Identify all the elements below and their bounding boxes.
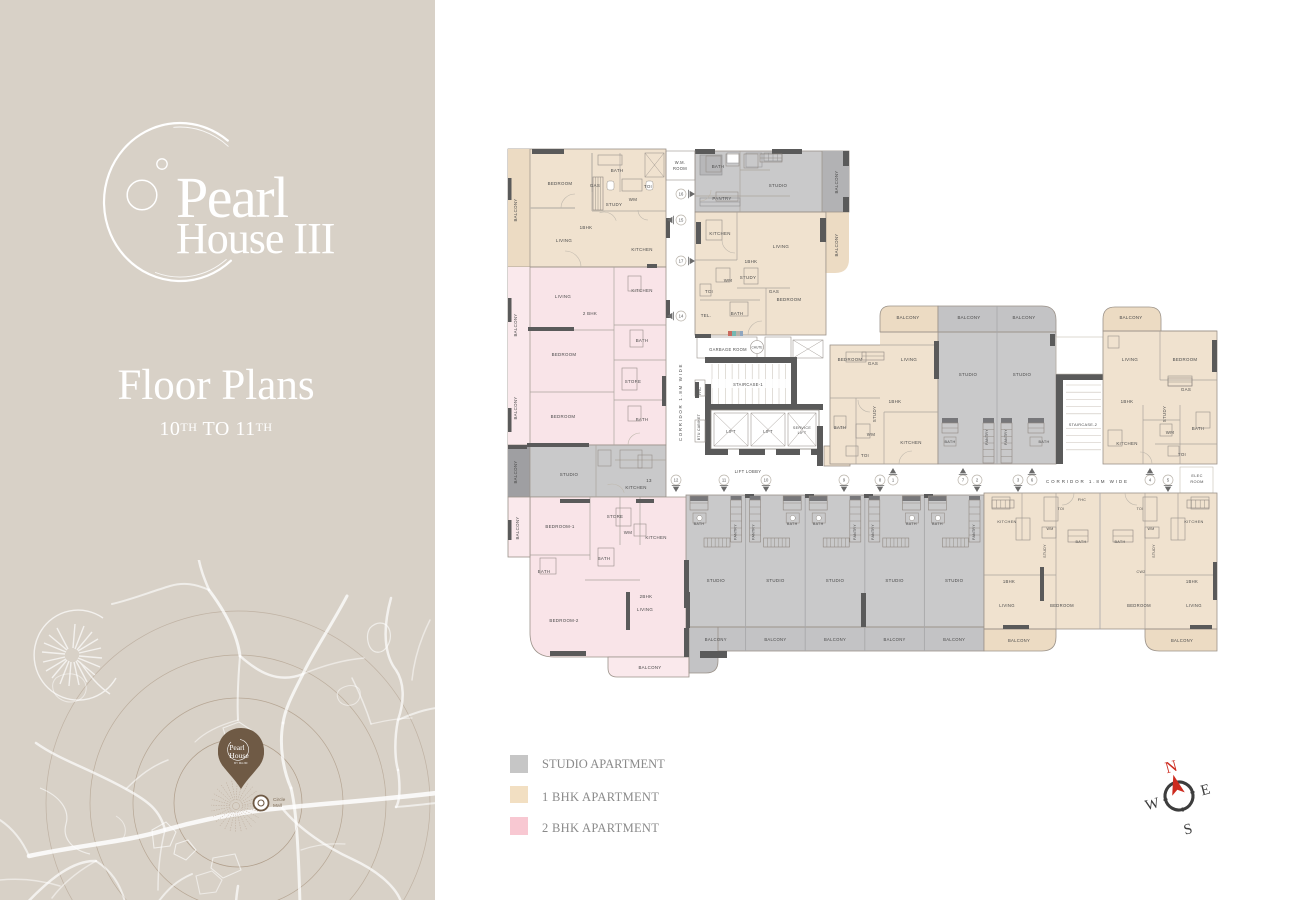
svg-text:1BHK: 1BHK [1186, 579, 1198, 584]
svg-text:LIVING: LIVING [555, 294, 571, 299]
svg-text:FHC: FHC [1078, 498, 1086, 502]
svg-text:STUDIO: STUDIO [945, 578, 964, 583]
svg-text:WM: WM [1047, 527, 1054, 531]
svg-text:BATH: BATH [598, 556, 611, 561]
svg-text:N: N [1163, 756, 1180, 777]
svg-text:STUDIO: STUDIO [959, 372, 978, 377]
svg-text:BEDROOM: BEDROOM [548, 181, 573, 186]
svg-text:LIVING: LIVING [901, 357, 917, 362]
svg-text:BATH: BATH [1038, 440, 1049, 444]
svg-text:KITCHEN: KITCHEN [631, 247, 652, 252]
svg-text:BATH: BATH [944, 440, 955, 444]
svg-text:SERVICE: SERVICE [793, 426, 811, 430]
svg-text:13: 13 [646, 478, 652, 483]
svg-text:CHUTE: CHUTE [752, 346, 763, 350]
svg-text:STUDY: STUDY [1152, 544, 1156, 558]
svg-text:LIVING: LIVING [1122, 357, 1138, 362]
svg-text:BEDROOM: BEDROOM [552, 352, 577, 357]
svg-text:BATH: BATH [538, 569, 551, 574]
svg-text:LIFT: LIFT [763, 429, 773, 434]
svg-text:BALCONY: BALCONY [1008, 638, 1030, 643]
svg-text:BEDROOM: BEDROOM [551, 414, 576, 419]
svg-text:BALCONY: BALCONY [638, 665, 661, 670]
svg-text:KITCHEN: KITCHEN [625, 485, 646, 490]
svg-text:TEL.: TEL. [701, 313, 711, 318]
svg-text:STORE: STORE [625, 379, 642, 384]
svg-text:15: 15 [679, 218, 684, 223]
svg-text:BALCONY: BALCONY [515, 516, 520, 539]
svg-text:STAIRCASE-2: STAIRCASE-2 [1069, 422, 1098, 427]
svg-text:BALCONY: BALCONY [884, 637, 906, 642]
svg-text:17: 17 [679, 259, 684, 264]
svg-text:10: 10 [764, 478, 769, 483]
svg-text:16: 16 [679, 192, 684, 197]
svg-text:TOI: TOI [1137, 507, 1144, 511]
svg-text:BEDROOM: BEDROOM [838, 357, 863, 362]
svg-text:BALCONY: BALCONY [513, 198, 518, 221]
svg-text:PANTRY: PANTRY [734, 524, 738, 540]
svg-text:TOI: TOI [705, 289, 713, 294]
svg-text:KITCHEN: KITCHEN [631, 288, 652, 293]
svg-text:STAIRCASE-1: STAIRCASE-1 [733, 382, 763, 387]
svg-text:1BHK: 1BHK [889, 399, 902, 404]
svg-text:BALCONY: BALCONY [824, 637, 846, 642]
svg-text:STUDIO: STUDIO [1013, 372, 1032, 377]
svg-text:BEDROOM: BEDROOM [777, 297, 802, 302]
svg-text:STORE: STORE [607, 514, 624, 519]
svg-text:STUDIO: STUDIO [826, 578, 845, 583]
svg-text:BATH: BATH [694, 522, 705, 526]
svg-text:KITCHEN: KITCHEN [709, 231, 730, 236]
svg-text:BALCONY: BALCONY [513, 396, 518, 419]
svg-text:TOI: TOI [1058, 507, 1065, 511]
svg-text:BATH: BATH [906, 522, 917, 526]
svg-text:WM: WM [1166, 430, 1174, 435]
svg-text:KITCHEN: KITCHEN [1116, 441, 1137, 446]
svg-text:KITCHEN: KITCHEN [1184, 519, 1203, 524]
svg-text:LIFT: LIFT [726, 429, 736, 434]
svg-text:ELEC: ELEC [1191, 473, 1202, 478]
svg-text:PANTRY: PANTRY [712, 196, 731, 201]
svg-text:BALCONY: BALCONY [764, 637, 786, 642]
svg-text:STUDY: STUDY [1162, 406, 1167, 422]
svg-text:BALCONY: BALCONY [834, 170, 839, 193]
svg-text:BALCONY: BALCONY [943, 637, 965, 642]
svg-text:BEDROOM: BEDROOM [1050, 603, 1074, 608]
svg-text:CORRIDOR 1.8M WIDE: CORRIDOR 1.8M WIDE [678, 363, 683, 441]
svg-text:BALCONY: BALCONY [513, 313, 518, 336]
svg-text:1BHK: 1BHK [1121, 399, 1134, 404]
svg-text:GAS: GAS [868, 361, 878, 366]
svg-text:PANTRY: PANTRY [972, 524, 976, 540]
svg-text:LIVING: LIVING [637, 607, 653, 612]
svg-text:WM: WM [867, 432, 875, 437]
svg-text:STUDIO: STUDIO [707, 578, 726, 583]
svg-text:S: S [1182, 821, 1194, 839]
svg-text:WM: WM [1148, 527, 1155, 531]
svg-text:PANTRY: PANTRY [871, 524, 875, 540]
svg-text:LIFT LOBBY: LIFT LOBBY [735, 469, 762, 474]
svg-text:ROOM: ROOM [1190, 479, 1203, 484]
svg-text:STUDIO: STUDIO [885, 578, 904, 583]
svg-text:BEDROOM: BEDROOM [1127, 603, 1151, 608]
svg-text:PANTRY: PANTRY [1004, 429, 1008, 445]
svg-text:BEDROOM-2: BEDROOM-2 [549, 618, 579, 623]
svg-text:WM: WM [624, 530, 632, 535]
svg-text:STUDY: STUDY [1043, 544, 1047, 558]
svg-text:STUDIO: STUDIO [769, 183, 788, 188]
svg-text:BATH: BATH [1192, 426, 1205, 431]
svg-text:LIVING: LIVING [1186, 603, 1202, 608]
svg-text:PANTRY: PANTRY [853, 524, 857, 540]
svg-text:2BHK: 2BHK [640, 594, 653, 599]
svg-text:1BHK: 1BHK [745, 259, 758, 264]
svg-text:STUDIO: STUDIO [560, 472, 579, 477]
svg-text:BATH: BATH [712, 164, 725, 169]
svg-text:BATH: BATH [834, 425, 847, 430]
svg-text:BALCONY: BALCONY [513, 460, 518, 483]
svg-text:BATH: BATH [932, 522, 943, 526]
svg-text:LIVING: LIVING [773, 244, 789, 249]
svg-text:WM: WM [629, 197, 637, 202]
svg-text:GAS: GAS [769, 289, 779, 294]
svg-text:BATH: BATH [1114, 540, 1125, 544]
svg-text:BALCONY: BALCONY [834, 233, 839, 256]
svg-text:GAS: GAS [1181, 387, 1191, 392]
svg-text:CORRIDOR 1.8M WIDE: CORRIDOR 1.8M WIDE [1046, 479, 1129, 484]
svg-text:BTU CABINET: BTU CABINET [697, 413, 701, 440]
svg-text:KITCHEN: KITCHEN [900, 440, 921, 445]
svg-text:BALCONY: BALCONY [957, 315, 980, 320]
svg-text:W: W [1143, 795, 1162, 814]
svg-text:BATH: BATH [636, 338, 649, 343]
svg-text:11: 11 [722, 478, 727, 483]
svg-text:TOI: TOI [861, 453, 869, 458]
svg-text:BATH: BATH [1075, 540, 1086, 544]
svg-text:LIVING: LIVING [999, 603, 1015, 608]
svg-text:BEDROOM-1: BEDROOM-1 [545, 524, 575, 529]
svg-text:TOI: TOI [644, 184, 652, 189]
svg-text:W.M.: W.M. [675, 160, 686, 165]
svg-text:BALCONY: BALCONY [705, 637, 727, 642]
svg-text:2 BHK: 2 BHK [583, 311, 597, 316]
svg-text:E: E [1199, 782, 1212, 800]
svg-text:STUDIO: STUDIO [766, 578, 785, 583]
svg-text:14: 14 [679, 314, 684, 319]
svg-text:BEDROOM: BEDROOM [1173, 357, 1198, 362]
svg-text:STUDY: STUDY [606, 202, 622, 207]
svg-text:12: 12 [674, 478, 679, 483]
svg-text:PANTRY: PANTRY [985, 429, 989, 445]
svg-text:STUDY: STUDY [872, 406, 877, 422]
svg-text:CW2: CW2 [1137, 570, 1146, 574]
svg-text:KITCHEN: KITCHEN [997, 519, 1016, 524]
svg-text:GARBAGE ROOM: GARBAGE ROOM [709, 347, 747, 352]
svg-text:BALCONY: BALCONY [1012, 315, 1035, 320]
svg-text:STUDY: STUDY [740, 275, 756, 280]
svg-text:PANTRY: PANTRY [752, 524, 756, 540]
svg-text:BATH: BATH [611, 168, 624, 173]
svg-text:1BHK: 1BHK [580, 225, 593, 230]
svg-text:BATH: BATH [813, 522, 824, 526]
svg-text:ROOM: ROOM [673, 166, 687, 171]
svg-text:KITCHEN: KITCHEN [645, 535, 666, 540]
svg-text:BALCONY: BALCONY [896, 315, 919, 320]
svg-text:BATH: BATH [787, 522, 798, 526]
svg-text:GAS: GAS [590, 183, 600, 188]
svg-text:LIVING: LIVING [556, 238, 572, 243]
svg-text:BALCONY: BALCONY [1119, 315, 1142, 320]
svg-text:1BHK: 1BHK [1003, 579, 1015, 584]
svg-text:LIFT: LIFT [798, 431, 807, 435]
svg-text:BALCONY: BALCONY [1171, 638, 1193, 643]
svg-text:BATH: BATH [731, 311, 744, 316]
